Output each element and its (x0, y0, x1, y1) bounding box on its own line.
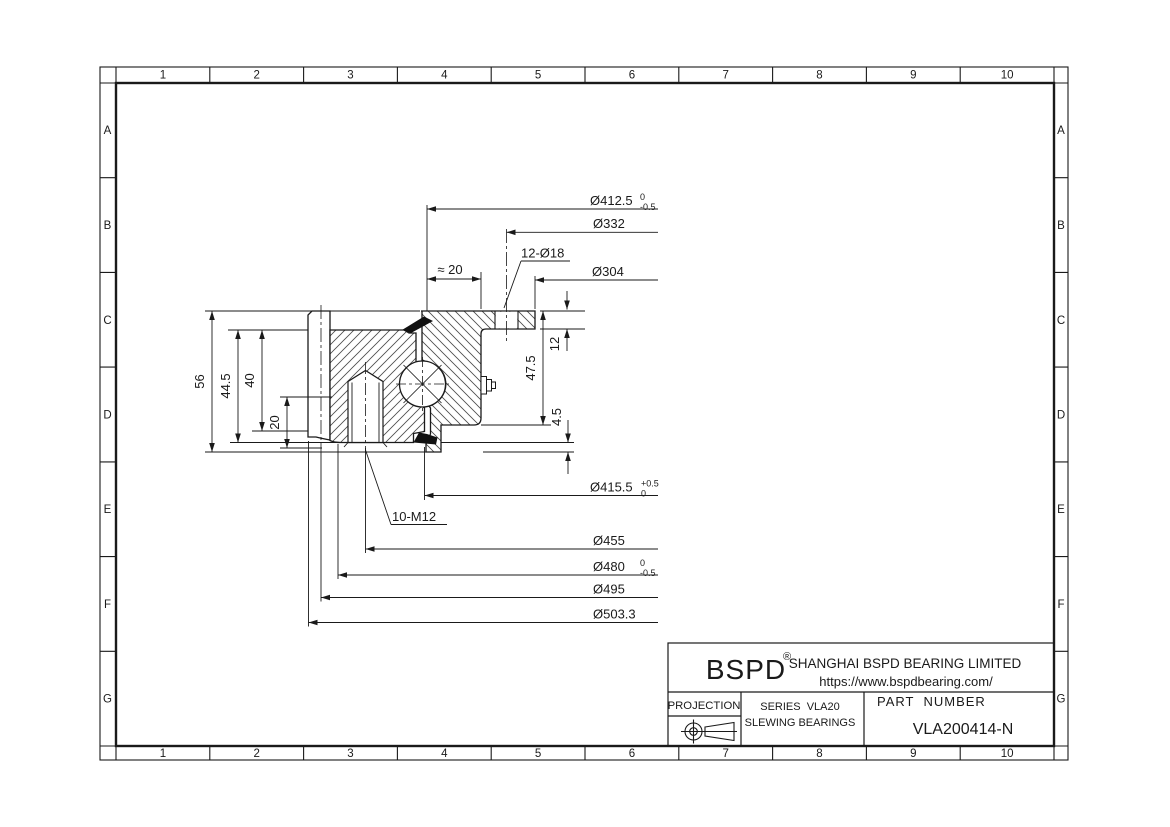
bearing-section (280, 229, 535, 452)
grid-col-label: 3 (347, 70, 353, 82)
grid-col-label: 10 (1001, 70, 1014, 82)
grid-col-label: 4 (441, 748, 448, 760)
ball (396, 357, 449, 411)
grid-row-label: C (103, 315, 111, 327)
dim-height-20: 20 (267, 415, 282, 429)
grid-col-label: 8 (816, 70, 822, 82)
part-number-value: VLA200414-N (913, 721, 1014, 738)
grid-row-label: F (1057, 599, 1064, 611)
grease-nipple-icon (481, 377, 496, 395)
grid-row-label: D (103, 410, 111, 422)
grid-col-label: 2 (253, 748, 259, 760)
company-name: SHANGHAI BSPD BEARING LIMITED (789, 656, 1022, 671)
drawing-page: 1 2 3 4 5 6 7 8 9 10 1 2 3 4 5 6 7 8 9 1… (0, 0, 1170, 827)
dim-thread-callout: 10-M12 (392, 509, 436, 524)
dim-height-4-5: 4.5 (549, 408, 564, 426)
dim-hole-count: 12-Ø18 (521, 246, 564, 261)
dim-tolerance: +0.5 (641, 479, 659, 489)
grid-row-label: E (104, 504, 112, 516)
dim-tolerance: 0 (640, 558, 645, 568)
dim-tolerance: 0 (641, 489, 646, 499)
dim-tolerance: -0.5 (640, 202, 656, 212)
title-block: BSPD ® SHANGHAI BSPD BEARING LIMITED htt… (668, 643, 1054, 746)
dim-height-47-5: 47.5 (523, 355, 538, 380)
dim-bore: Ø304 (592, 264, 624, 279)
grid-col-label: 8 (816, 748, 822, 760)
grid-row-label: G (1057, 694, 1066, 706)
grid-row-label: F (104, 599, 111, 611)
grid-col-label: 2 (253, 70, 259, 82)
grid-col-label: 1 (160, 748, 166, 760)
dim-outer-dia: Ø503.3 (593, 607, 636, 622)
grid-col-label: 1 (160, 70, 166, 82)
dim-total-height: 56 (192, 374, 207, 388)
dim-od-top: Ø412.5 (590, 193, 633, 208)
dim-tolerance: 0 (640, 192, 645, 202)
grid-col-label: 5 (535, 748, 541, 760)
grid-col-label: 7 (722, 748, 728, 760)
grid-row-label: C (1057, 315, 1065, 327)
grid-row-label: A (1057, 125, 1065, 137)
grid-col-label: 6 (629, 748, 635, 760)
engineering-drawing: 1 2 3 4 5 6 7 8 9 10 1 2 3 4 5 6 7 8 9 1… (0, 0, 1170, 827)
series-label: SERIES VLA20 (760, 701, 840, 713)
dim-ring-height: 44.5 (218, 373, 233, 398)
grid-row-label: B (104, 220, 112, 232)
part-number-label: PART NUMBER (877, 694, 986, 709)
company-website: https://www.bspdbearing.com/ (819, 674, 993, 689)
grid-col-label: 3 (347, 748, 353, 760)
grid-col-label: 6 (629, 70, 635, 82)
grid-row-label: B (1057, 220, 1065, 232)
grid-col-label: 5 (535, 70, 541, 82)
grid-col-label: 7 (722, 70, 728, 82)
dim-height-40: 40 (242, 373, 257, 387)
grid-col-label: 9 (910, 70, 916, 82)
first-angle-projection-icon (681, 720, 737, 744)
grid-row-label: A (104, 125, 112, 137)
brand-logo: BSPD (706, 654, 786, 685)
dim-spigot-dia: Ø480 (593, 559, 625, 574)
grid-col-label: 9 (910, 748, 916, 760)
dim-seal-dia: Ø415.5 (590, 480, 633, 495)
dim-flange-thickness: 12 (547, 337, 562, 351)
grid-row-label: G (103, 694, 112, 706)
projection-label: PROJECTION (668, 700, 741, 712)
grid-col-label: 4 (441, 70, 448, 82)
dim-approx-20: ≈ 20 (437, 262, 462, 277)
dim-bolt-circle-bottom: Ø455 (593, 533, 625, 548)
dim-groove-dia: Ø495 (593, 582, 625, 597)
dim-tolerance: -0.5 (640, 568, 656, 578)
outer-ring-rim (308, 311, 330, 440)
grid-row-label: D (1057, 410, 1065, 422)
grid-row-label: E (1057, 504, 1065, 516)
series-type-label: SLEWING BEARINGS (745, 717, 856, 729)
dim-bolt-circle-top: Ø332 (593, 216, 625, 231)
grid-col-label: 10 (1001, 748, 1014, 760)
inner-border (116, 83, 1054, 746)
